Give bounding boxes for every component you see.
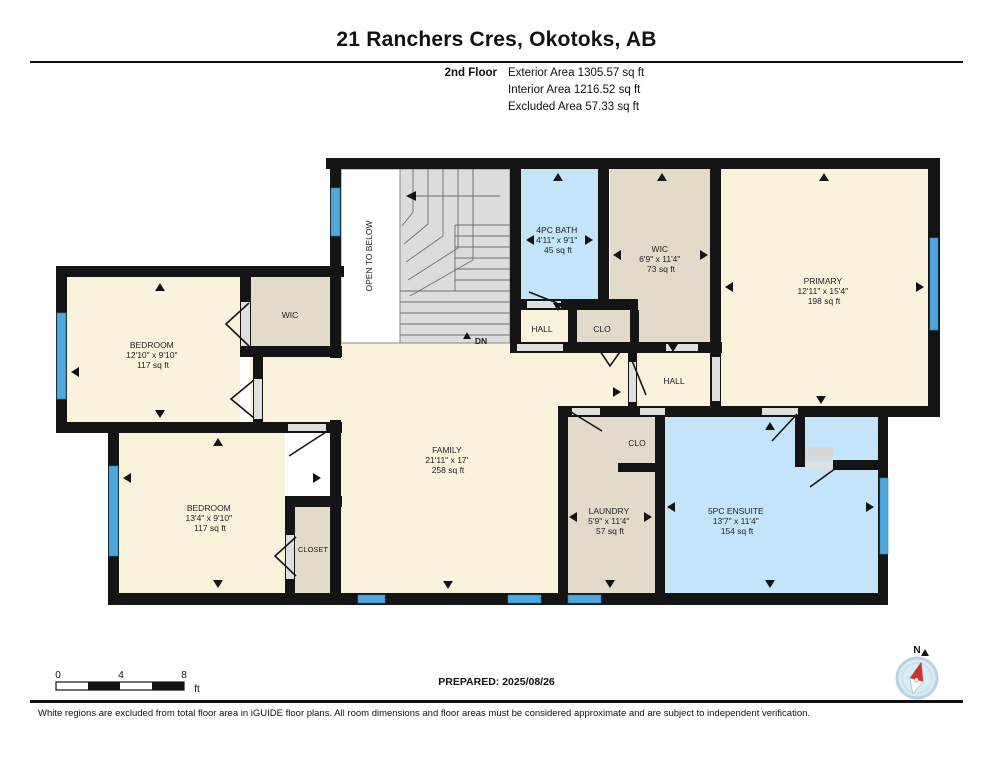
family-extension-floor — [558, 353, 628, 406]
ensuite-floor — [665, 417, 878, 593]
window-stairs — [331, 188, 340, 236]
floorplan-drawing: OPEN TO BELOW DN 4PC BATH 4'11" x 9'1" 4… — [0, 0, 993, 768]
closet-label: CLOSET — [298, 545, 328, 554]
clo-mid-label: CLO — [628, 438, 646, 448]
window-family-left — [358, 595, 385, 603]
hall-right-label: HALL — [663, 376, 685, 386]
window-primary — [930, 238, 938, 330]
dn-label: DN — [475, 336, 487, 346]
window-family-right — [508, 595, 541, 603]
compass-icon: N — [897, 645, 937, 698]
compass-north-label: N — [913, 645, 920, 656]
floorplan-page: 21 Ranchers Cres, Okotoks, AB 2nd Floor … — [0, 0, 993, 768]
footer-divider — [30, 700, 963, 703]
disclaimer-text: White regions are excluded from total fl… — [38, 708, 958, 719]
clo-upper-label: CLO — [593, 324, 611, 334]
open-to-below-label: OPEN TO BELOW — [364, 220, 374, 291]
wic-left-label: WIC — [282, 310, 299, 320]
family-label: FAMILY 21'11" x 17' 258 sq ft — [425, 445, 470, 475]
window-bedroom-top — [57, 313, 66, 399]
window-bedroom-bottom — [109, 466, 118, 556]
vestibule-floor — [250, 357, 342, 422]
prepared-date: PREPARED: 2025/08/26 — [0, 676, 993, 688]
window-ensuite — [880, 478, 888, 554]
compass-north-arrow — [921, 649, 929, 656]
window-laundry — [568, 595, 601, 603]
hall-upper-label: HALL — [531, 324, 553, 334]
